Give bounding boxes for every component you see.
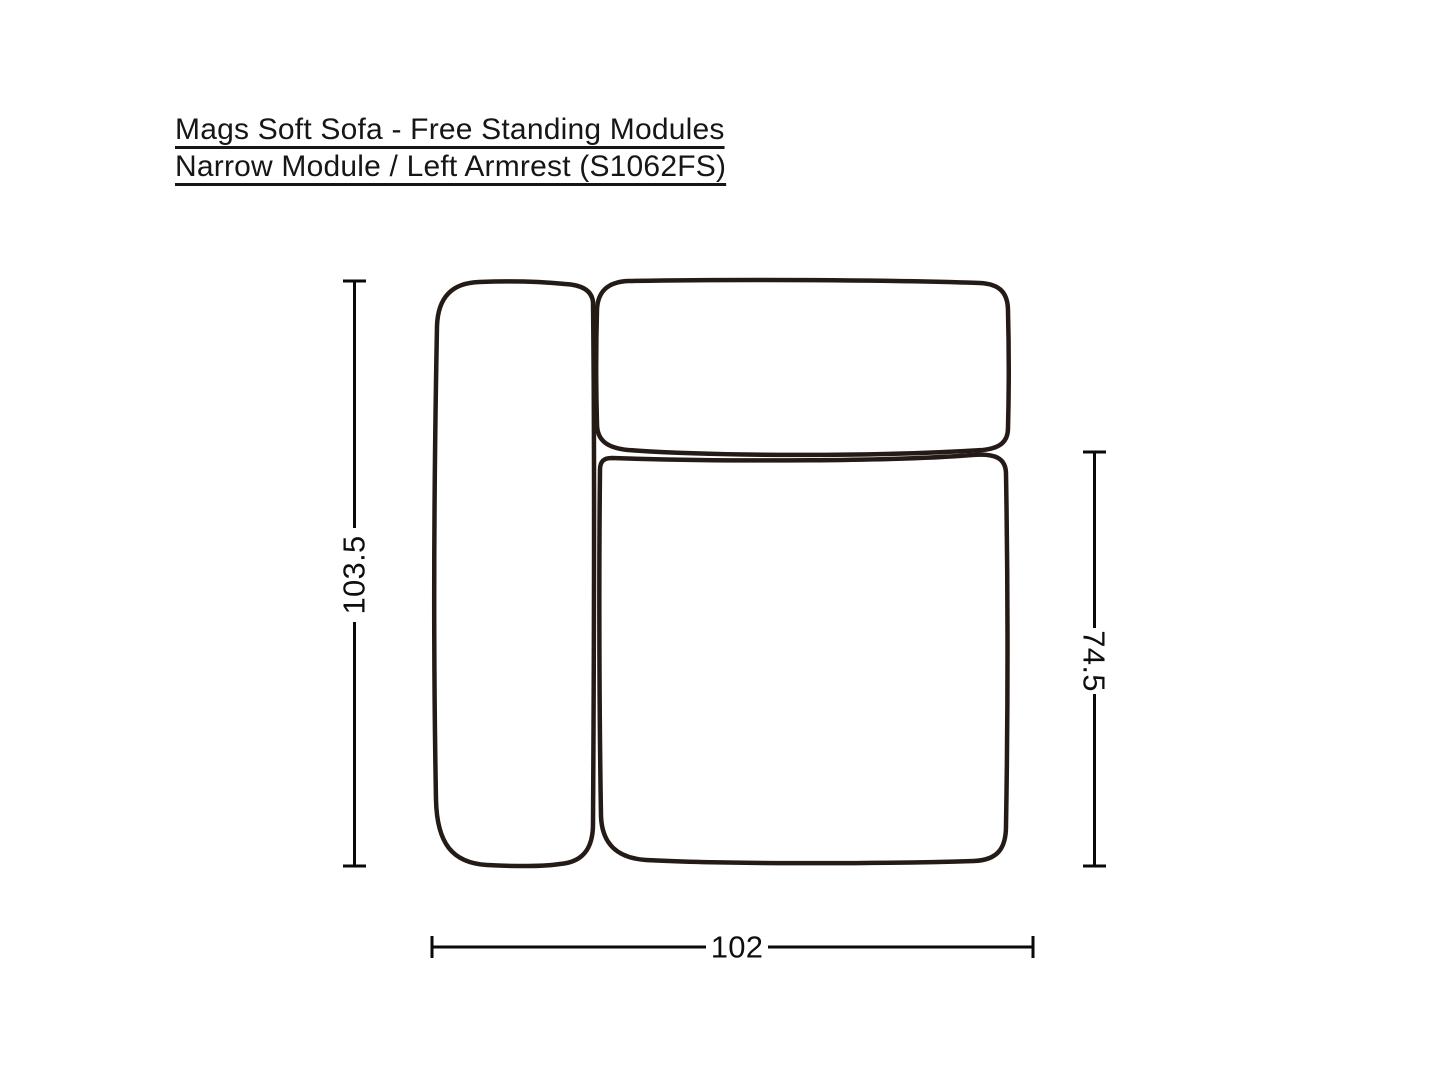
dimension-left: 103.5	[337, 281, 372, 866]
dimension-left-label: 103.5	[337, 535, 372, 614]
sofa-dimension-diagram: 103.5 74.5 102	[0, 0, 1445, 1087]
dimension-bottom: 102	[432, 930, 1033, 965]
sofa-top-view	[434, 280, 1009, 866]
seat-outline	[599, 455, 1007, 864]
dimension-right: 74.5	[1077, 452, 1112, 866]
dimension-bottom-label: 102	[711, 930, 764, 965]
backrest-outline	[596, 280, 1009, 455]
armrest-outline	[434, 281, 594, 866]
dimension-right-label: 74.5	[1077, 630, 1112, 692]
